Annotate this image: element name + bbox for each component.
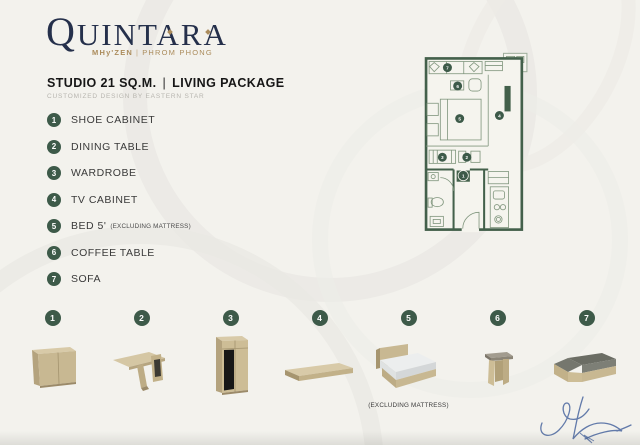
thumbnail-bed: 5 (EXCLUDING MATTRESS) [364, 310, 453, 410]
item-label: WARDROBE [71, 167, 136, 179]
item-label: SHOE CABINET [71, 114, 155, 126]
list-item: 3 WARDROBE [47, 166, 191, 180]
item-number-badge: 4 [47, 193, 61, 207]
subtitle-divider: | [136, 48, 139, 57]
shoe-cabinet-image [10, 332, 96, 396]
page-bottom-shadow [0, 431, 640, 445]
plan-marker-5: 5 [455, 114, 464, 123]
item-label: TV CABINET [71, 194, 138, 206]
package-type: LIVING PACKAGE [172, 76, 284, 90]
svg-text:2: 2 [466, 155, 469, 160]
item-note: (EXCLUDING MATTRESS) [110, 223, 191, 230]
plan-marker-4: 4 [495, 111, 504, 120]
page-subtitle: CUSTOMIZED DESIGN BY EASTERN STAR [47, 93, 284, 100]
list-item: 6 COFFEE TABLE [47, 246, 191, 260]
item-label: BED 5' [71, 220, 106, 232]
plan-marker-1: 1 [458, 171, 468, 181]
plan-marker-2: 2 [462, 153, 471, 162]
plan-marker-7: 7 [443, 63, 452, 72]
brochure-page: QUINTARA MHy'ZEN|PHROM PHONG STUDIO 21 S… [0, 0, 640, 445]
item-number-badge: 6 [490, 310, 506, 326]
brand-name: QUINTARA [46, 16, 266, 51]
item-number-badge: 7 [47, 272, 61, 286]
item-label: DINING TABLE [71, 141, 149, 153]
page-title: STUDIO 21 SQ.M.|LIVING PACKAGE [47, 76, 284, 90]
item-number-badge: 1 [47, 113, 61, 127]
furniture-legend: 1 SHOE CABINET 2 DINING TABLE 3 WARDROBE… [47, 113, 191, 286]
list-item: 5 BED 5' (EXCLUDING MATTRESS) [47, 219, 191, 233]
package-heading: STUDIO 21 SQ.M.|LIVING PACKAGE CUSTOMIZE… [47, 76, 284, 100]
item-number-badge: 5 [401, 310, 417, 326]
item-number-badge: 2 [47, 140, 61, 154]
thumbnail-dining-table: 2 [97, 310, 186, 410]
thumbnail-coffee-table: 6 [453, 310, 542, 410]
svg-text:1: 1 [462, 174, 465, 179]
svg-text:4: 4 [498, 113, 501, 118]
item-number-badge: 5 [47, 219, 61, 233]
thumbnail-tv-cabinet: 4 [275, 310, 364, 410]
list-item: 7 SOFA [47, 272, 191, 286]
brand-line: MHy'ZEN [92, 48, 133, 57]
item-number-badge: 7 [579, 310, 595, 326]
item-label: SOFA [71, 273, 101, 285]
item-number-badge: 1 [45, 310, 61, 326]
tv-cabinet-image [277, 332, 363, 396]
thumbnail-note: (EXCLUDING MATTRESS) [368, 402, 449, 410]
list-item: 4 TV CABINET [47, 193, 191, 207]
plan-marker-3: 3 [438, 153, 447, 162]
item-number-badge: 2 [134, 310, 150, 326]
svg-text:5: 5 [458, 116, 461, 121]
list-item: 2 DINING TABLE [47, 140, 191, 154]
unit-type: STUDIO 21 SQ.M. [47, 76, 157, 90]
thumbnail-wardrobe: 3 [186, 310, 275, 410]
brand-logo: QUINTARA MHy'ZEN|PHROM PHONG [46, 16, 266, 57]
brand-location: PHROM PHONG [142, 48, 213, 57]
item-number-badge: 3 [47, 166, 61, 180]
plan-marker-6: 6 [453, 81, 462, 90]
bed-image [366, 332, 452, 396]
wardrobe-image [188, 332, 274, 396]
svg-text:6: 6 [456, 84, 459, 89]
svg-text:3: 3 [441, 155, 444, 160]
coffee-table-image [455, 332, 541, 396]
dining-table-image [99, 332, 185, 396]
thumbnail-shoe-cabinet: 1 [8, 310, 97, 410]
brand-subtitle: MHy'ZEN|PHROM PHONG [92, 48, 266, 57]
item-label: COFFEE TABLE [71, 247, 155, 259]
list-item: 1 SHOE CABINET [47, 113, 191, 127]
title-divider: | [163, 76, 167, 90]
item-number-badge: 6 [47, 246, 61, 260]
svg-text:7: 7 [446, 65, 449, 70]
item-number-badge: 3 [223, 310, 239, 326]
floor-plan: 7 6 5 4 3 2 1 [423, 52, 531, 234]
item-number-badge: 4 [312, 310, 328, 326]
